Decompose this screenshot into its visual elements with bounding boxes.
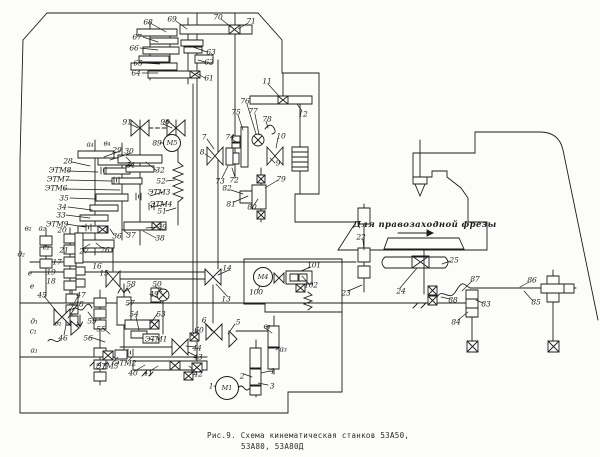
- part-label: 50: [152, 280, 161, 288]
- part-label: 75: [231, 108, 240, 116]
- part-label: 81: [226, 200, 235, 208]
- part-label: 101: [307, 261, 321, 269]
- part-label: 31: [126, 161, 135, 169]
- part-label: ЭТМ6: [45, 184, 67, 192]
- part-label: 86: [527, 276, 536, 284]
- part-label: 21: [59, 246, 68, 254]
- part-label: 78: [262, 115, 271, 123]
- part-label: ЭТМ8: [49, 166, 71, 174]
- part-label: 67: [132, 33, 141, 41]
- part-label: 58: [126, 280, 135, 288]
- part-label: 9: [276, 159, 281, 167]
- part-label: с₂: [43, 243, 50, 251]
- part-label: е: [30, 282, 34, 290]
- part-label: 38: [155, 234, 164, 242]
- part-label: 43: [193, 353, 202, 361]
- part-label: 28: [63, 157, 72, 165]
- part-label: д₁: [30, 317, 37, 325]
- part-label: 63: [206, 48, 215, 56]
- part-label: 32: [155, 166, 164, 174]
- part-label: 55: [96, 325, 105, 333]
- part-label: 77: [248, 107, 257, 115]
- part-label: 47: [76, 291, 85, 299]
- part-label: 85: [531, 298, 540, 306]
- part-label: 24: [396, 287, 405, 295]
- part-label: 33: [56, 211, 65, 219]
- part-label: 11: [262, 77, 271, 85]
- part-label: 88: [448, 296, 457, 304]
- part-label: е: [28, 269, 32, 277]
- part-label: 84: [451, 318, 460, 326]
- part-label: 83: [481, 300, 490, 308]
- part-label: а₄: [86, 140, 93, 148]
- part-label: 29: [112, 146, 121, 154]
- part-label: 82: [222, 184, 231, 192]
- figure-caption: Рис.9. Схема кинематическая станков 53А5…: [207, 430, 409, 452]
- part-label: 36: [112, 232, 121, 240]
- part-label: а₂: [38, 224, 45, 232]
- part-label: а₁: [30, 346, 37, 354]
- part-label: 62: [204, 58, 213, 66]
- part-label: 42: [193, 370, 202, 378]
- scanned-diagram-page: 6867666564697071636261111276777875747810…: [0, 0, 600, 457]
- part-label: 70: [213, 13, 222, 21]
- part-label: 68: [143, 18, 152, 26]
- part-label: ЭТМ1: [145, 335, 167, 343]
- part-label: а₃: [279, 345, 286, 353]
- part-label: 54: [129, 310, 138, 318]
- part-label: ЭТМ3: [148, 188, 170, 196]
- part-label: 100: [249, 288, 263, 296]
- part-label: 37: [126, 231, 135, 239]
- part-label: 57: [125, 299, 134, 307]
- part-label: д₂: [17, 250, 24, 258]
- part-label: 26: [100, 246, 109, 254]
- part-label: в₃: [264, 322, 271, 330]
- part-label: 48: [74, 300, 83, 308]
- part-label: 6: [202, 316, 207, 324]
- part-label: 2: [240, 372, 245, 380]
- part-label: ЭТМ2: [114, 359, 136, 367]
- part-label: 39: [157, 223, 166, 231]
- part-label: 79: [276, 175, 285, 183]
- part-label: 65: [133, 59, 142, 67]
- part-label: 87: [470, 275, 479, 283]
- part-label: 35: [59, 194, 68, 202]
- part-label: 102: [304, 281, 318, 289]
- part-label: 25: [449, 256, 458, 264]
- part-label: в₁: [55, 319, 62, 327]
- part-label: 80: [247, 203, 256, 211]
- kinematic-diagram-linework: [0, 0, 600, 457]
- part-label: 69: [167, 15, 176, 23]
- part-label: 49: [149, 290, 158, 298]
- part-label: 64: [131, 69, 140, 77]
- part-label: 30: [124, 147, 133, 155]
- part-label: 46: [58, 334, 67, 342]
- part-label: 41: [143, 369, 152, 377]
- part-label: 12: [298, 110, 307, 118]
- part-label: 3: [270, 382, 275, 390]
- part-label: 15: [99, 269, 108, 277]
- motor-badge: М1: [215, 376, 239, 400]
- part-label: 1: [209, 382, 214, 390]
- part-label: 13: [221, 295, 230, 303]
- part-label: 74: [225, 133, 234, 141]
- part-label: 5: [236, 318, 241, 326]
- caption-line-1: Рис.9. Схема кинематическая станков 53А5…: [207, 430, 409, 441]
- spindle-head: [413, 140, 427, 196]
- motor-badge: М5: [163, 134, 181, 152]
- part-label: 59: [87, 317, 96, 325]
- part-label: с₁: [30, 327, 37, 335]
- part-label: 71: [246, 17, 255, 25]
- part-label: 89: [152, 139, 161, 147]
- part-label: 60: [194, 326, 203, 334]
- part-label: 44: [192, 344, 201, 352]
- part-label: 76: [240, 97, 249, 105]
- part-label: 52: [156, 177, 165, 185]
- part-label: 91: [122, 118, 131, 126]
- part-label: 66: [129, 44, 138, 52]
- part-label: 53: [156, 310, 165, 318]
- part-label: 23: [341, 289, 350, 297]
- motor-badge: М4: [253, 267, 273, 287]
- part-label: 7: [202, 133, 207, 141]
- part-label: 56: [83, 334, 92, 342]
- part-label: 90: [160, 118, 169, 126]
- part-label: 14: [222, 264, 231, 272]
- part-label: 40: [128, 369, 137, 377]
- caption-line-2: 53А80, 53А80Д: [241, 441, 409, 452]
- part-label: 22: [356, 233, 365, 241]
- part-label: 45: [37, 291, 46, 299]
- part-label: 20: [57, 226, 66, 234]
- part-label: в₂: [25, 224, 32, 232]
- part-label: 17: [52, 258, 61, 266]
- part-label: 19: [46, 268, 55, 276]
- table-annotation: Для правозаходной фрезы: [353, 220, 496, 230]
- part-label: в₄: [104, 139, 111, 147]
- part-label: 8: [200, 148, 205, 156]
- part-label: 61: [204, 74, 213, 82]
- part-label: 18: [46, 277, 55, 285]
- leader-lines: [44, 19, 533, 387]
- part-label: 51: [157, 207, 166, 215]
- part-label: ЭТМ7: [47, 175, 69, 183]
- part-label: 4: [270, 367, 275, 375]
- part-label: 27: [79, 247, 88, 255]
- part-label: 10: [276, 132, 285, 140]
- gear-symbols: [40, 25, 574, 395]
